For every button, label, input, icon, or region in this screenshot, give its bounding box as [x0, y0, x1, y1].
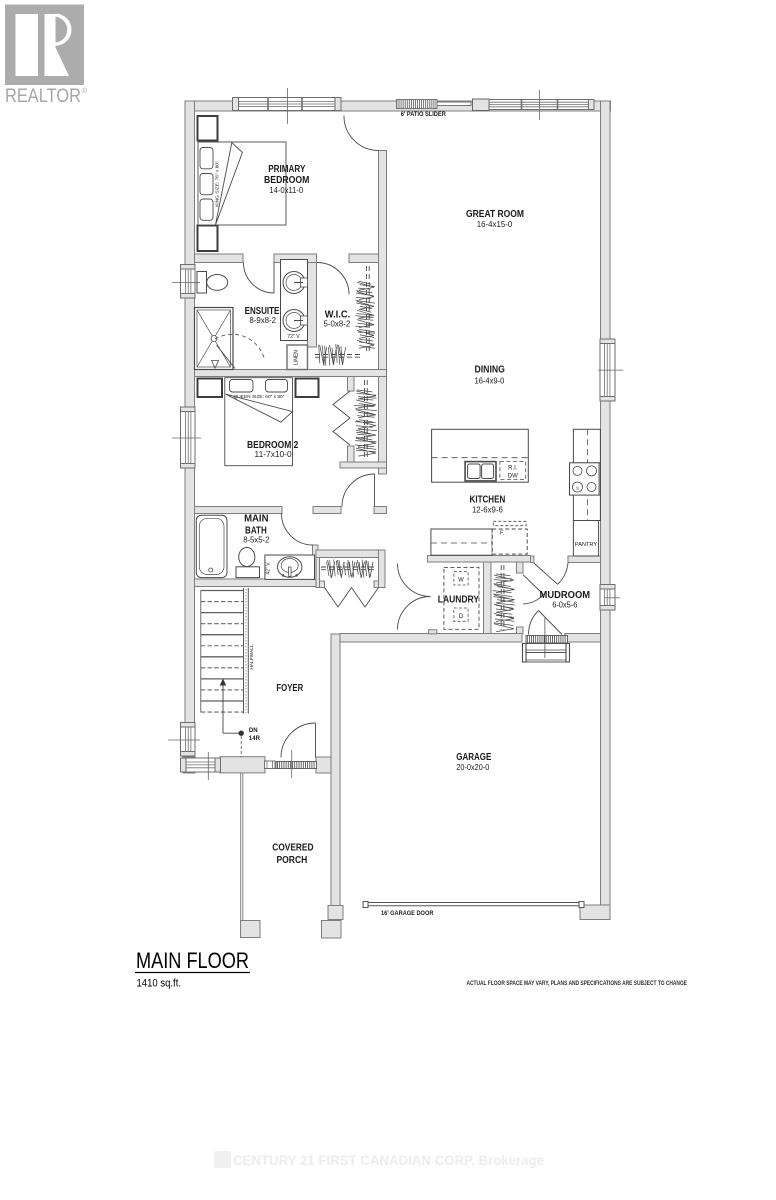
svg-text:8-9x8-2: 8-9x8-2: [249, 316, 276, 325]
svg-text:14R: 14R: [249, 736, 261, 742]
svg-text:DINING: DINING: [475, 364, 505, 376]
svg-text:MAIN: MAIN: [244, 513, 268, 525]
svg-text:GREAT ROOM: GREAT ROOM: [466, 208, 524, 220]
svg-text:72" V.: 72" V.: [287, 334, 300, 340]
svg-text:8-5x5-2: 8-5x5-2: [243, 535, 270, 544]
svg-text:ACTUAL FLOOR SPACE MAY VARY, P: ACTUAL FLOOR SPACE MAY VARY, PLANS AND S…: [467, 981, 688, 987]
svg-text:16-4x9-0: 16-4x9-0: [475, 377, 505, 386]
svg-text:KITCHEN: KITCHEN: [470, 494, 506, 506]
svg-text:16-4x15-0: 16-4x15-0: [477, 220, 513, 229]
svg-text:BEDROOM: BEDROOM: [264, 174, 310, 186]
svg-text:1410 sq.ft.: 1410 sq.ft.: [137, 978, 182, 990]
svg-text:PANTRY: PANTRY: [575, 542, 597, 548]
svg-text:W.I.C.: W.I.C.: [325, 308, 351, 320]
svg-text:DN: DN: [249, 728, 258, 734]
svg-text:HALFWALL: HALFWALL: [249, 644, 255, 669]
svg-text:ENSUITE: ENSUITE: [245, 305, 280, 317]
svg-text:D: D: [459, 614, 464, 620]
svg-text:42" V.: 42" V.: [266, 562, 272, 575]
svg-text:COVERED: COVERED: [272, 842, 314, 854]
svg-text:16' GARAGE DOOR: 16' GARAGE DOOR: [381, 910, 434, 917]
svg-text:MUDROOM: MUDROOM: [540, 589, 591, 601]
svg-text:F.: F.: [500, 531, 505, 537]
svg-text:CENTURY 21 FIRST CANADIAN CORP: CENTURY 21 FIRST CANADIAN CORP. Brokerag…: [233, 1153, 544, 1168]
svg-text:REALTOR: REALTOR: [5, 86, 81, 107]
svg-text:DW: DW: [508, 474, 518, 480]
svg-text:S: S: [576, 486, 579, 491]
svg-text:R.I.: R.I.: [508, 466, 518, 472]
svg-text:KING SIZE: 76" x 80": KING SIZE: 76" x 80": [215, 161, 221, 207]
svg-text:MAIN FLOOR: MAIN FLOOR: [136, 948, 249, 973]
svg-text:PORCH: PORCH: [276, 854, 307, 866]
svg-text:QUEEN SIZE: 60" x 80": QUEEN SIZE: 60" x 80": [234, 394, 285, 400]
svg-text:5-0x8-2: 5-0x8-2: [324, 320, 351, 329]
svg-text:FOYER: FOYER: [276, 682, 303, 694]
svg-text:®: ®: [82, 86, 88, 95]
svg-text:LAUNDRY: LAUNDRY: [438, 594, 479, 606]
svg-text:W: W: [458, 578, 464, 584]
svg-text:GARAGE: GARAGE: [456, 751, 491, 763]
svg-text:12-6x9-6: 12-6x9-6: [472, 506, 503, 515]
svg-text:LINEN: LINEN: [294, 350, 300, 365]
svg-text:14-0x11-0: 14-0x11-0: [269, 186, 303, 195]
svg-text:11-7x10-0: 11-7x10-0: [255, 450, 293, 459]
svg-text:20-0x20-0: 20-0x20-0: [456, 763, 489, 772]
svg-text:6' PATIO SLIDER: 6' PATIO SLIDER: [401, 111, 446, 118]
svg-text:6-0x5-6: 6-0x5-6: [552, 601, 578, 610]
